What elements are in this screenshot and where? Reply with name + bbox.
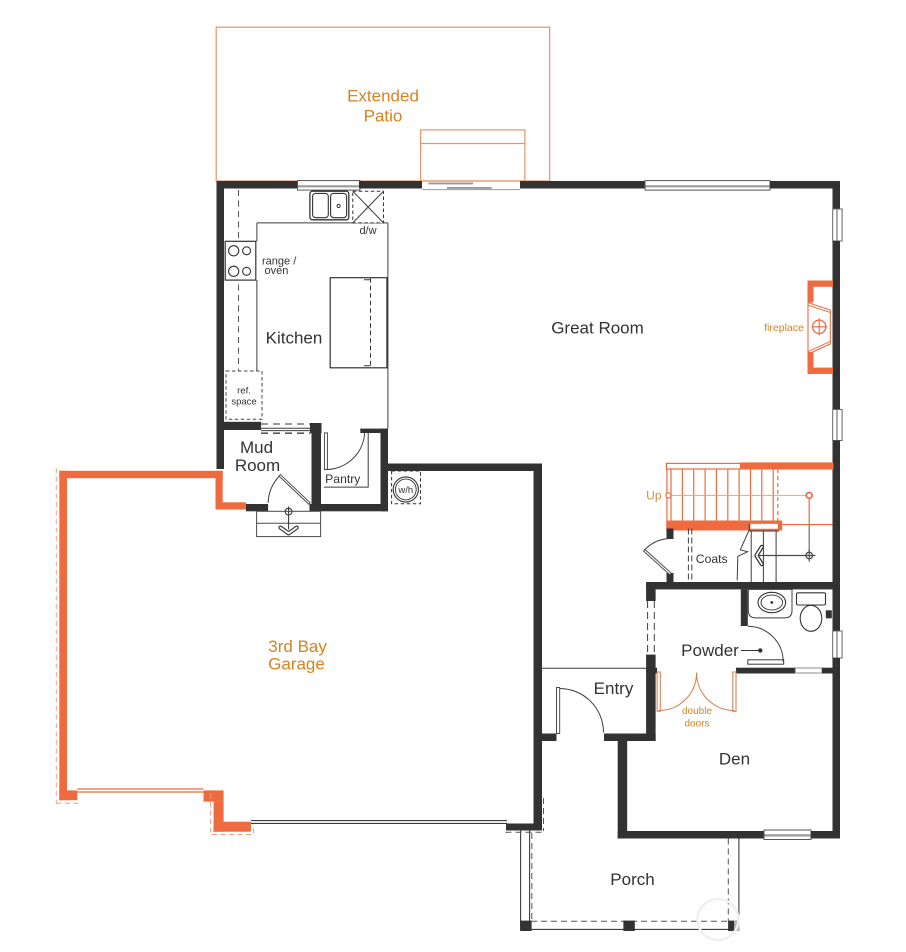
svg-text:oven: oven: [265, 265, 289, 277]
svg-text:Entry: Entry: [594, 679, 634, 698]
svg-text:Great Room: Great Room: [551, 319, 644, 338]
svg-text:d/w: d/w: [359, 225, 376, 237]
svg-text:Patio: Patio: [364, 106, 403, 125]
svg-text:double: double: [682, 706, 712, 717]
svg-text:fireplace: fireplace: [764, 322, 804, 334]
svg-text:Extended: Extended: [347, 86, 419, 105]
svg-text:space: space: [231, 397, 256, 408]
svg-text:Powder: Powder: [681, 641, 739, 660]
svg-text:Room: Room: [235, 456, 280, 475]
svg-text:doors: doors: [684, 719, 709, 730]
svg-text:Coats: Coats: [696, 552, 728, 566]
svg-text:Garage: Garage: [268, 655, 325, 674]
svg-text:Pantry: Pantry: [325, 472, 361, 486]
svg-text:3rd Bay: 3rd Bay: [268, 637, 327, 656]
svg-text:Mud: Mud: [240, 438, 273, 457]
svg-text:w/h: w/h: [397, 485, 413, 496]
svg-text:ref.: ref.: [237, 386, 251, 397]
svg-text:Den: Den: [719, 750, 750, 769]
svg-text:Up: Up: [646, 489, 662, 503]
svg-text:Porch: Porch: [610, 870, 654, 889]
svg-text:Kitchen: Kitchen: [266, 328, 323, 347]
